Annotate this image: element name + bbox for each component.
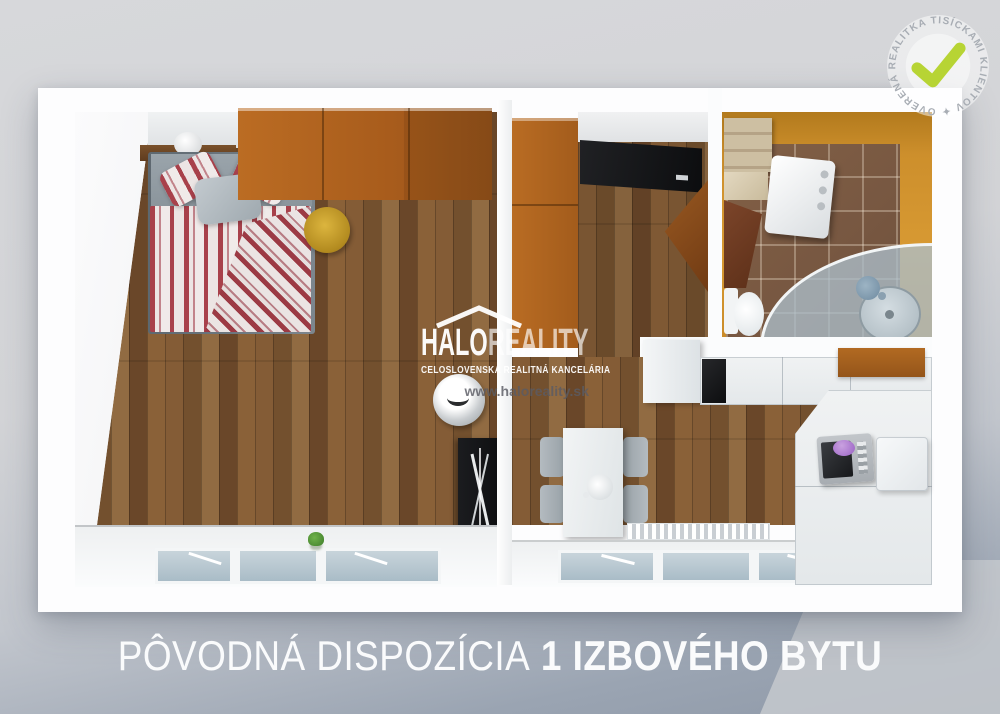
kitchen-upper-cabinet-brown [838,348,925,377]
gold-side-table [304,207,350,253]
wardrobe-seam [408,108,410,200]
dining-chair [540,437,565,477]
window-mullion [653,553,663,580]
wardrobe-seam [322,108,324,200]
window-mullion [316,551,326,581]
washing-machine [764,155,836,239]
counter-seam [782,357,783,405]
round-silver-stool [433,374,485,426]
shower-drain-icon [885,310,894,319]
cooktop [702,359,726,403]
caption: PÔVODNÁ DISPOZÍCIA 1 IZBOVÉHO BYTU [60,632,940,680]
hallway-wardrobe [512,118,578,348]
bathroom [722,112,932,348]
window-mullion [230,551,240,581]
wardrobe-seam [512,204,578,206]
caption-space [530,632,541,679]
dining-chair [623,485,648,523]
washer-knob-icon [820,170,829,179]
kitchen-tall-cabinet [643,340,700,403]
window-handle [188,552,221,565]
microwave-buttons-icon [857,442,868,475]
dining-table [563,428,623,537]
shower-head-icon [856,276,880,300]
door-handle-icon [676,175,688,181]
dividing-wall [497,100,512,585]
window-handle [601,554,635,565]
table-centerpiece [587,474,613,500]
caption-bold: 1 IZBOVÉHO BYTU [541,632,882,679]
kitchen-storage-box [876,437,928,491]
scene-floorplan-render: HALOREALITY CELOSLOVENSKÁ REALITNÁ KANCE… [0,0,1000,714]
dining-chair [623,437,648,477]
washer-knob-icon [817,202,826,211]
window-handle [354,552,387,565]
livingroom-window [155,548,441,584]
purple-appliance [833,440,855,456]
toilet-bowl [734,292,764,336]
window-mullion [749,553,759,580]
floorplan [38,88,962,612]
hallway-bathroom-wall [708,88,722,348]
bathroom-shelf-wood [724,118,772,172]
kitchen-radiator [627,523,770,540]
dining-chair [540,485,565,523]
entrance-door [580,140,702,193]
stool-detail [447,390,469,406]
bathroom-shelf-lower [724,172,768,200]
washer-knob-icon [818,186,827,195]
livingroom-wardrobe [238,108,492,200]
verified-badge: OVERENÁ REALITKA TISÍCKAMI KLIENTOV ✦ [886,14,990,118]
hallway-kitchen-passage-floor [578,337,640,359]
caption-regular: PÔVODNÁ DISPOZÍCIA [118,632,531,679]
hallway-ceiling-strip [578,112,708,142]
plant-icon [308,532,324,546]
